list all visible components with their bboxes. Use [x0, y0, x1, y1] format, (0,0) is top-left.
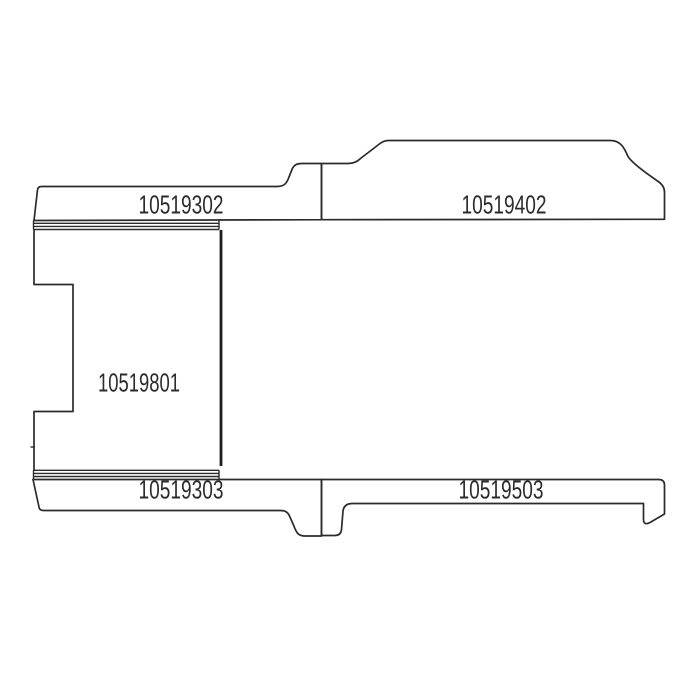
part-label-center-panel: 10519801: [98, 368, 180, 398]
panel-top-band: [34, 221, 220, 230]
parts-diagram-canvas: 10519302 10519402 10519801 10519303 1051…: [0, 0, 700, 700]
part-label-bottom-left: 10519303: [139, 475, 224, 505]
part-10519801-outline: [34, 230, 73, 471]
part-label-top-left: 10519302: [139, 190, 224, 220]
part-label-bottom-right: 10519503: [459, 475, 544, 505]
part-label-top-right: 10519402: [462, 190, 547, 220]
parts-diagram: 10519302 10519402 10519801 10519303 1051…: [0, 0, 700, 700]
